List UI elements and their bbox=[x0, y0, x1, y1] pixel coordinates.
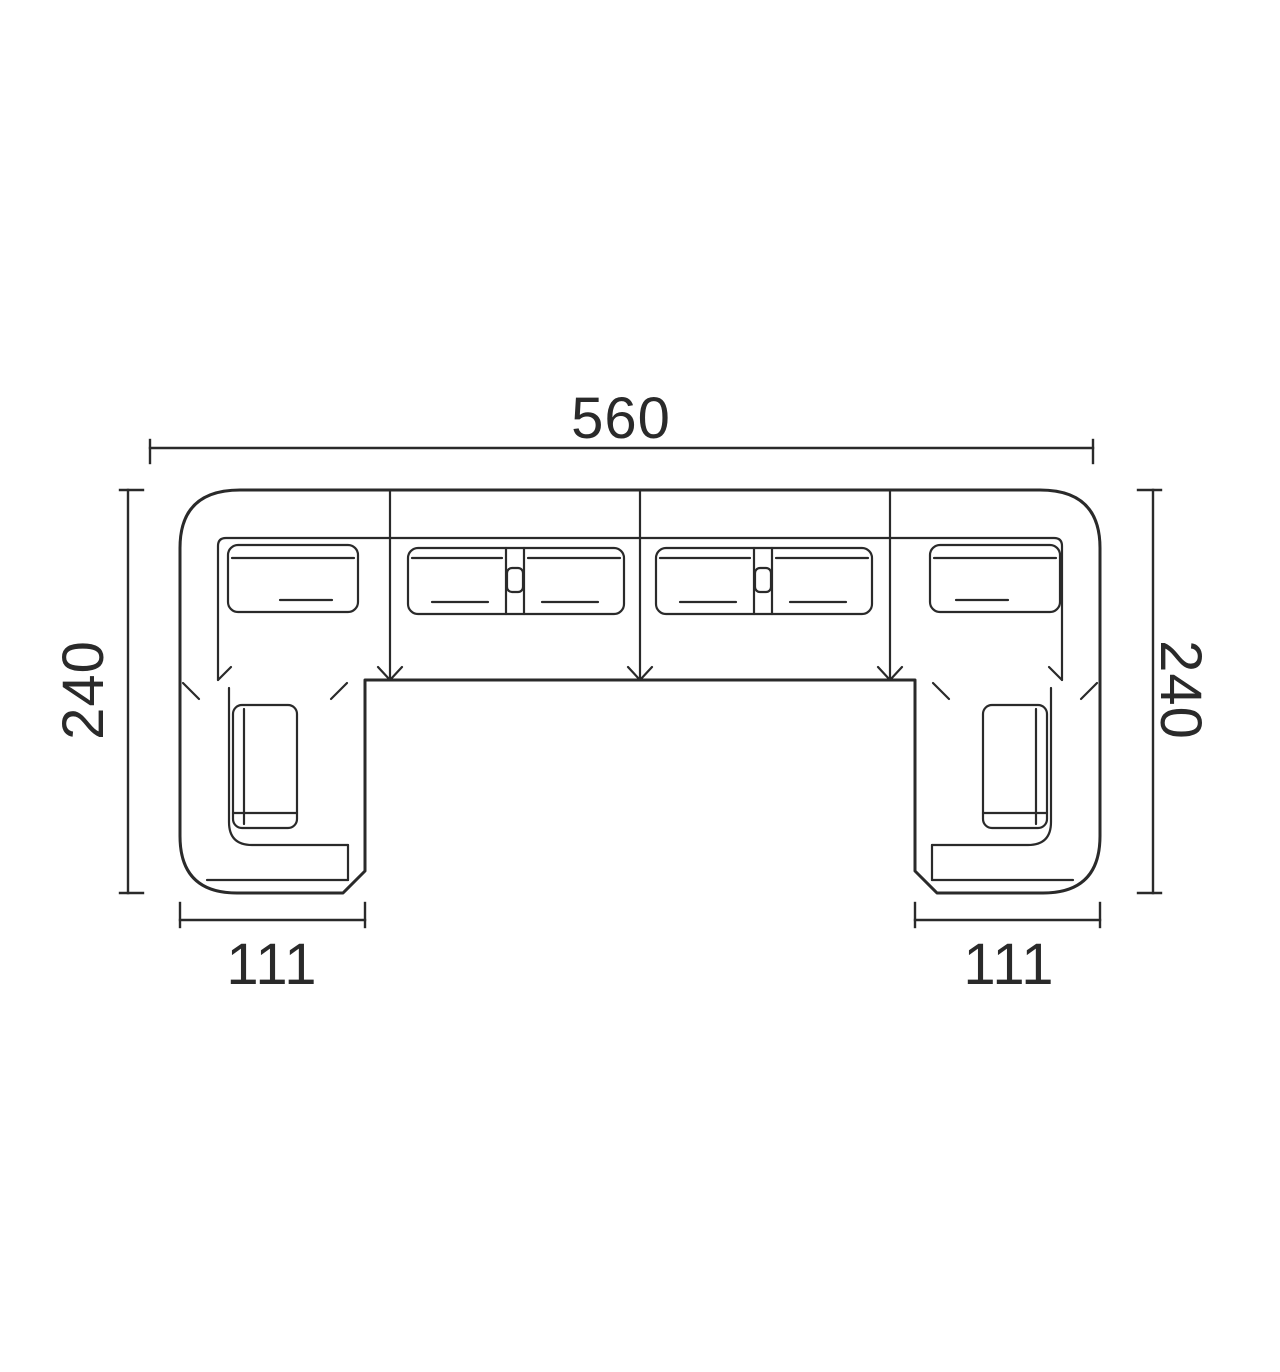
dimension-lines-group: 560 240 240 111 bbox=[51, 386, 1213, 997]
sofa-dimension-diagram: 560 240 240 111 bbox=[0, 0, 1280, 1372]
dim-depth-left: 240 bbox=[51, 490, 143, 893]
dim-chaise-right-width: 111 bbox=[915, 903, 1100, 997]
chaise-right-arm-inner bbox=[932, 688, 1051, 845]
dim-label-depth-right: 240 bbox=[1148, 640, 1213, 740]
dim-label-chaise-left-width: 111 bbox=[226, 932, 317, 997]
back-cushion-left-corner bbox=[228, 545, 358, 612]
dim-label-depth-left: 240 bbox=[51, 640, 116, 740]
sofa-outline-group bbox=[180, 490, 1100, 893]
dim-chaise-left-width: 111 bbox=[180, 903, 365, 997]
back-cushion-left-middle bbox=[408, 548, 624, 614]
dim-overall-width: 560 bbox=[150, 386, 1093, 463]
dim-label-chaise-right-width: 111 bbox=[963, 932, 1054, 997]
chaise-left-group bbox=[207, 688, 348, 880]
dim-depth-right: 240 bbox=[1138, 490, 1213, 893]
dim-label-overall-width: 560 bbox=[571, 386, 671, 451]
chaise-left-arm-inner bbox=[229, 688, 348, 845]
diagram-canvas: 560 240 240 111 bbox=[0, 0, 1280, 1372]
back-cushion-right-middle bbox=[656, 548, 872, 614]
chaise-right-cushion bbox=[983, 705, 1047, 828]
chaise-right-group bbox=[932, 688, 1073, 880]
back-cushion-right-corner bbox=[930, 545, 1060, 612]
back-cushions-group bbox=[228, 545, 1060, 614]
chaise-left-cushion bbox=[233, 705, 297, 828]
